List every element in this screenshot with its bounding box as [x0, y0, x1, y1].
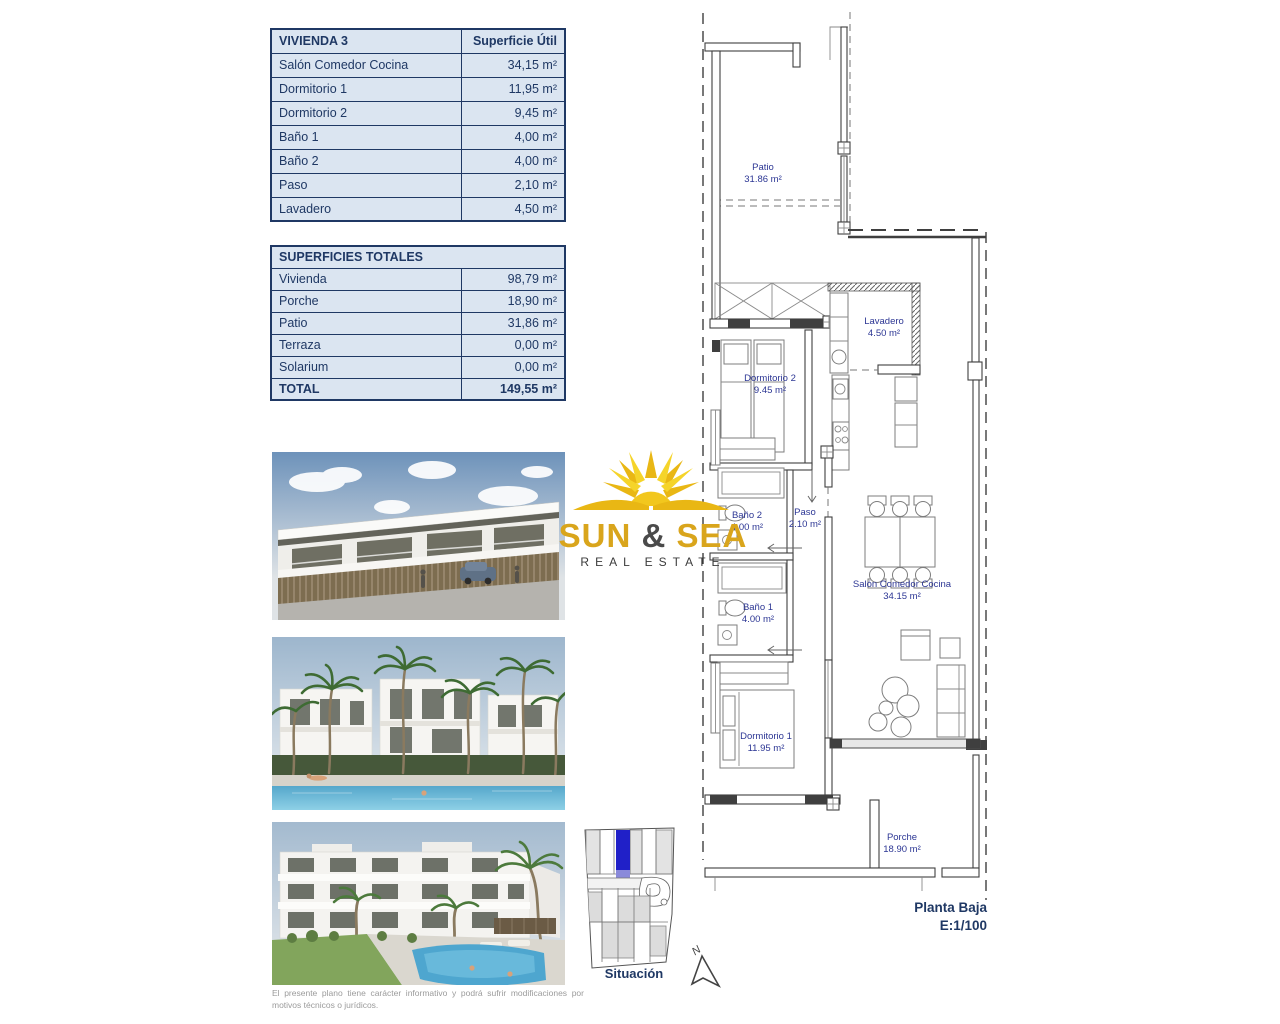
room-area-dormitorio1: 11.95 m²: [748, 743, 785, 754]
sun-and-sea-logo: SUN & SEA REAL ESTATE: [551, 448, 755, 569]
disclaimer-text: El presente plano tiene carácter informa…: [272, 988, 584, 1012]
situation-map: [578, 822, 690, 972]
room-label-patio: Patio: [752, 162, 774, 173]
side-table: [940, 638, 960, 658]
fridge: [895, 377, 917, 401]
table-row: Lavadero4,50 m²: [271, 197, 565, 221]
render-image-pool: [272, 637, 565, 810]
table-row: Salón Comedor Cocina34,15 m²: [271, 53, 565, 77]
table-row: Vivienda98,79 m²: [271, 268, 565, 290]
table-row: Paso2,10 m²: [271, 173, 565, 197]
room-area-bano1: 4.00 m²: [742, 614, 774, 625]
room-area-dormitorio2: 9.45 m²: [754, 385, 786, 396]
table-row: Dormitorio 29,45 m²: [271, 101, 565, 125]
room-label-porche: Porche: [887, 832, 917, 843]
logo-tagline: REAL ESTATE: [551, 555, 755, 569]
apartment-top-wall: [710, 316, 835, 328]
brochure-page: { "tables": { "vivienda": { "title": "VI…: [0, 0, 1280, 1024]
salon-bottom-wall: [830, 739, 980, 748]
table-title: VIVIENDA 3: [271, 29, 461, 53]
vivienda-areas-table: VIVIENDA 3 Superficie Útil Salón Comedor…: [270, 28, 566, 222]
room-label-dormitorio1: Dormitorio 1: [740, 731, 792, 742]
room-area-patio: 31.86 m²: [744, 174, 782, 185]
washbasin: [718, 625, 737, 645]
table-row: Baño 14,00 m²: [271, 125, 565, 149]
plan-scale: E:1/100: [940, 918, 987, 933]
porch-walls: [705, 800, 979, 891]
table-header-superficie: Superficie Útil: [461, 29, 565, 53]
table-row: Terraza0,00 m²: [271, 334, 565, 356]
table-row-total: TOTAL149,55 m²: [271, 378, 565, 400]
plan-title: Planta Baja: [914, 900, 987, 915]
pergola-area: [715, 283, 830, 319]
room-area-lavadero: 4.50 m²: [868, 328, 900, 339]
sofa: [937, 665, 965, 737]
table-row: Dormitorio 111,95 m²: [271, 77, 565, 101]
sun-icon: [551, 448, 755, 514]
room-area-salon: 34.15 m²: [883, 591, 921, 602]
north-arrow: N: [686, 938, 731, 993]
room-label-dormitorio2: Dormitorio 2: [744, 373, 796, 384]
superficies-totales-table: SUPERFICIES TOTALES Vivienda98,79 m² Por…: [270, 245, 566, 401]
logo-wordmark: SUN & SEA: [551, 519, 755, 552]
room-area-paso: 2.10 m²: [789, 519, 821, 530]
salon-furniture: [865, 496, 965, 737]
room-area-porche: 18.90 m²: [883, 844, 921, 855]
logo-ampersand: &: [641, 517, 666, 554]
pool-highlight: [424, 950, 535, 978]
kitchen-counter: [832, 375, 917, 470]
table-row: Baño 24,00 m²: [271, 149, 565, 173]
dining-set: [865, 496, 935, 588]
pool-water: [272, 786, 565, 810]
render-image-townhouses: [272, 452, 565, 620]
table-row: Patio31,86 m²: [271, 312, 565, 334]
dorm1-bottom-wall: [705, 795, 840, 810]
room-label-salon: Salón Comedor Cocina: [853, 579, 952, 590]
north-needle: [692, 956, 719, 986]
logo-word-sea: SEA: [677, 517, 748, 554]
hedge: [272, 755, 565, 775]
right-walls: [966, 238, 987, 868]
room-label-paso: Paso: [794, 507, 816, 518]
highlighted-unit: [616, 830, 630, 870]
washing-machine: [832, 350, 846, 364]
room-label-lavadero: Lavadero: [864, 316, 904, 327]
logo-word-sun: SUN: [559, 517, 632, 554]
room-label-bano1: Baño 1: [743, 602, 773, 613]
table-row: Solarium0,00 m²: [271, 356, 565, 378]
table-title: SUPERFICIES TOTALES: [271, 246, 565, 268]
situation-label: Situación: [578, 966, 690, 981]
render-image-residence: [272, 822, 565, 985]
coffee-tables: [869, 677, 919, 737]
table-row: Porche18,90 m²: [271, 290, 565, 312]
kitchen-hob: [833, 422, 849, 450]
dormitorio2-furniture: [720, 340, 784, 460]
